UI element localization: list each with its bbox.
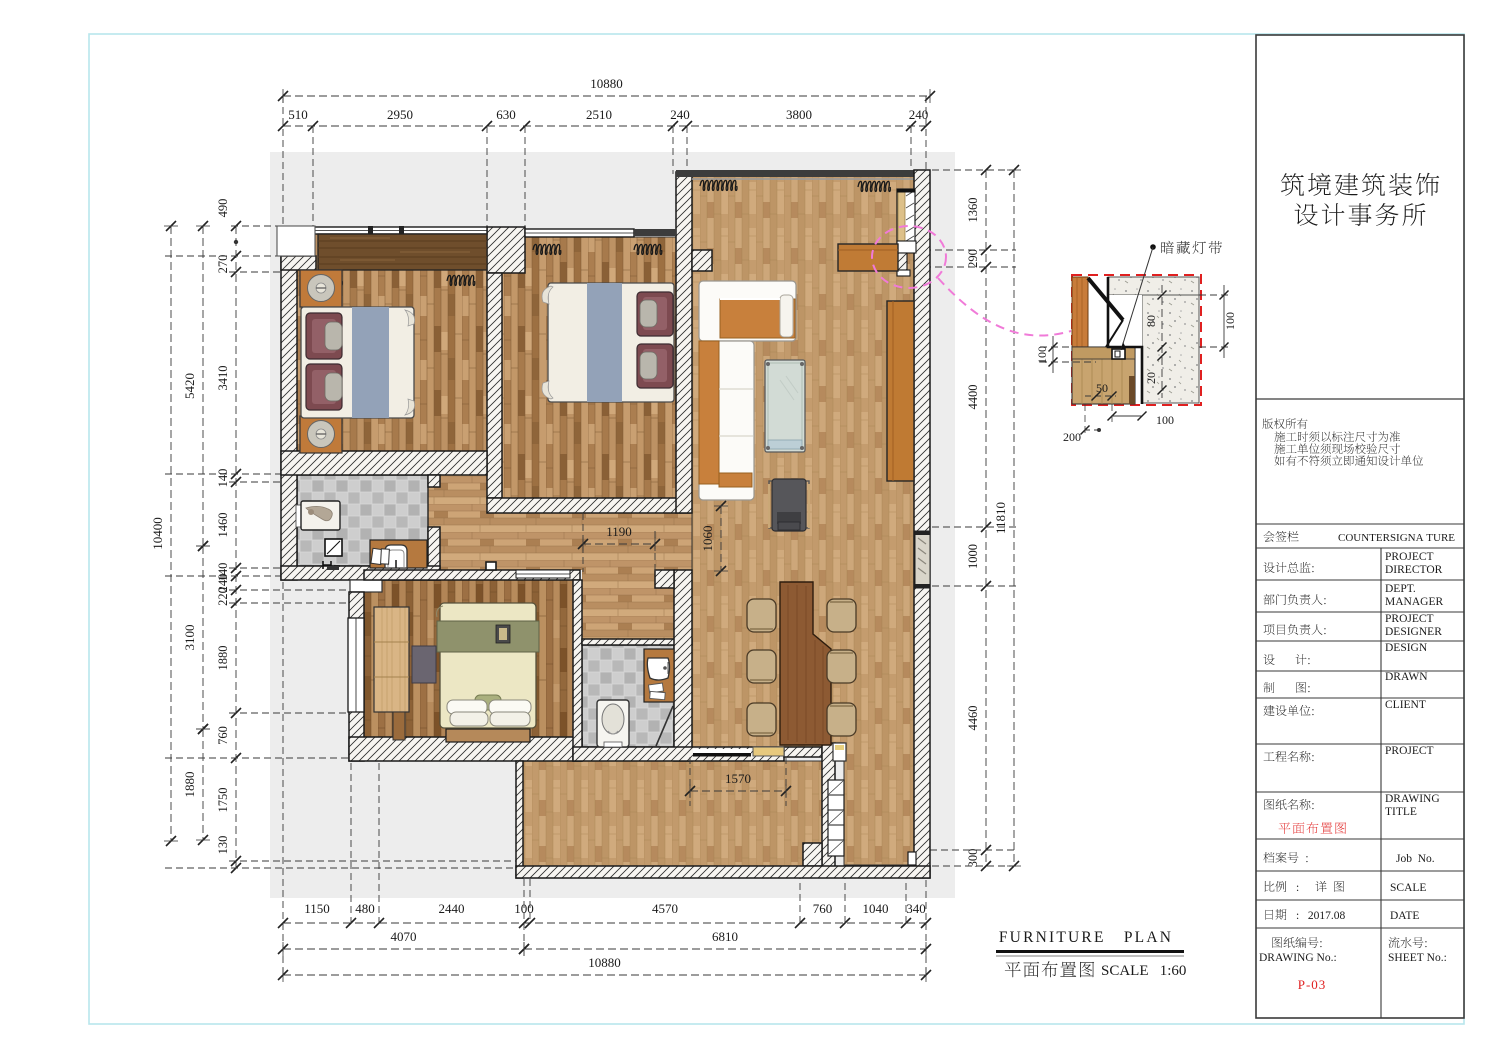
svg-text:COUNTERSIGNA TURE: COUNTERSIGNA TURE — [1338, 532, 1455, 544]
svg-text:DRAWING No.:: DRAWING No.: — [1259, 952, 1337, 964]
svg-text:11810: 11810 — [993, 502, 1008, 534]
svg-text:100: 100 — [1035, 346, 1049, 364]
svg-text:PROJECT: PROJECT — [1385, 613, 1434, 625]
svg-text:Job No.: Job No. — [1396, 853, 1435, 865]
svg-text:3800: 3800 — [786, 107, 812, 122]
svg-text:480: 480 — [355, 901, 375, 916]
svg-text:240: 240 — [670, 107, 690, 122]
svg-text:4570: 4570 — [652, 901, 678, 916]
svg-text:CLIENT: CLIENT — [1385, 699, 1426, 711]
svg-text:SCALE: SCALE — [1390, 882, 1426, 894]
svg-text:DIRECTOR: DIRECTOR — [1385, 564, 1443, 576]
svg-text:1190: 1190 — [606, 524, 632, 539]
svg-text::: : — [1296, 882, 1299, 894]
svg-text:2510: 2510 — [586, 107, 612, 122]
svg-text:TITLE: TITLE — [1385, 806, 1417, 818]
svg-text:10880: 10880 — [590, 76, 623, 91]
svg-text:1880: 1880 — [182, 772, 197, 798]
svg-text:6810: 6810 — [712, 929, 738, 944]
svg-text:SCALE 1:60: SCALE 1:60 — [1101, 963, 1186, 979]
svg-text:P-03: P-03 — [1298, 977, 1327, 992]
svg-text:FURNITURE PLAN: FURNITURE PLAN — [999, 929, 1173, 946]
svg-text:DRAWING: DRAWING — [1385, 793, 1440, 805]
svg-text:100: 100 — [1156, 413, 1174, 427]
svg-text:4460: 4460 — [966, 706, 980, 731]
svg-text:630: 630 — [496, 107, 516, 122]
svg-text:DESIGN: DESIGN — [1385, 642, 1428, 654]
svg-text:130: 130 — [216, 836, 230, 855]
svg-text:270: 270 — [216, 255, 230, 274]
svg-text:1880: 1880 — [216, 646, 230, 671]
svg-text:240: 240 — [909, 107, 929, 122]
svg-text:2440: 2440 — [439, 901, 465, 916]
svg-text:2950: 2950 — [387, 107, 413, 122]
svg-text:20: 20 — [1144, 372, 1158, 384]
svg-text:1360: 1360 — [966, 198, 980, 223]
svg-text:140: 140 — [216, 469, 230, 488]
svg-text:290: 290 — [966, 249, 980, 268]
svg-text:10880: 10880 — [588, 955, 621, 970]
svg-text:760: 760 — [216, 726, 230, 745]
svg-text:490: 490 — [216, 199, 230, 218]
svg-text:200: 200 — [1063, 430, 1081, 444]
svg-text:4070: 4070 — [391, 929, 417, 944]
svg-text:50: 50 — [1096, 381, 1108, 395]
svg-text:1570: 1570 — [725, 771, 751, 786]
svg-text:MANAGER: MANAGER — [1385, 596, 1443, 608]
svg-text:10400: 10400 — [150, 517, 165, 550]
svg-text:: 2017.08: : 2017.08 — [1296, 910, 1345, 922]
svg-text:760: 760 — [813, 901, 833, 916]
svg-text:PROJECT: PROJECT — [1385, 745, 1434, 757]
svg-text:SHEET No.:: SHEET No.: — [1388, 952, 1447, 964]
svg-text:340: 340 — [906, 901, 926, 916]
svg-text:DESIGNER: DESIGNER — [1385, 626, 1442, 638]
svg-text:220: 220 — [216, 587, 230, 606]
svg-text:DATE: DATE — [1390, 910, 1419, 922]
svg-text:DEPT.: DEPT. — [1385, 583, 1416, 595]
svg-text:3410: 3410 — [216, 366, 230, 391]
svg-text:1040: 1040 — [863, 901, 889, 916]
svg-text:4400: 4400 — [966, 385, 980, 410]
svg-text:PROJECT: PROJECT — [1385, 551, 1434, 563]
svg-text:100: 100 — [1223, 312, 1237, 330]
svg-text:DRAWN: DRAWN — [1385, 671, 1428, 683]
svg-text:1060: 1060 — [700, 526, 715, 552]
svg-text:3100: 3100 — [182, 625, 197, 651]
svg-text:1000: 1000 — [966, 544, 980, 569]
svg-text:300: 300 — [966, 849, 980, 868]
svg-text:510: 510 — [288, 107, 308, 122]
svg-text:1460: 1460 — [216, 513, 230, 538]
svg-text:5420: 5420 — [182, 373, 197, 399]
svg-text:1150: 1150 — [304, 901, 330, 916]
svg-text:1750: 1750 — [216, 788, 230, 813]
svg-text:80: 80 — [1144, 315, 1158, 327]
